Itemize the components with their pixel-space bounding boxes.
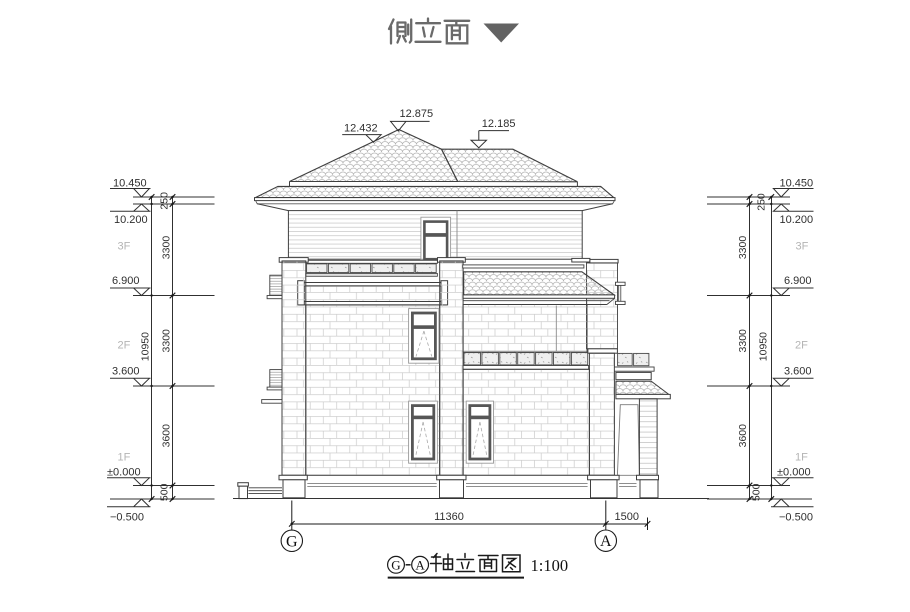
svg-text:−0.500: −0.500 bbox=[110, 512, 144, 524]
svg-text:500: 500 bbox=[751, 483, 763, 501]
svg-text:6.900: 6.900 bbox=[784, 275, 812, 287]
svg-text:3600: 3600 bbox=[161, 424, 173, 448]
svg-text:10950: 10950 bbox=[139, 332, 151, 361]
svg-text:A: A bbox=[415, 557, 425, 572]
svg-text:500: 500 bbox=[159, 483, 171, 501]
svg-text:2F: 2F bbox=[795, 340, 808, 352]
svg-text:10950: 10950 bbox=[757, 332, 769, 361]
svg-text:1500: 1500 bbox=[615, 511, 639, 523]
svg-text:±0.000: ±0.000 bbox=[107, 466, 141, 478]
svg-text:10.450: 10.450 bbox=[113, 177, 147, 189]
svg-text:3600: 3600 bbox=[737, 424, 749, 448]
svg-text:10.450: 10.450 bbox=[780, 177, 814, 189]
svg-text:250: 250 bbox=[756, 193, 768, 211]
svg-text:G: G bbox=[286, 533, 298, 550]
svg-text:1F: 1F bbox=[118, 451, 131, 463]
svg-text:2F: 2F bbox=[118, 340, 131, 352]
svg-text:A: A bbox=[600, 533, 612, 550]
svg-text:1:100: 1:100 bbox=[531, 556, 569, 575]
svg-text:6.900: 6.900 bbox=[112, 275, 140, 287]
svg-text:12.875: 12.875 bbox=[400, 108, 434, 120]
svg-text:G: G bbox=[391, 557, 400, 572]
svg-text:3300: 3300 bbox=[161, 236, 173, 260]
svg-text:11360: 11360 bbox=[434, 511, 464, 523]
svg-text:3F: 3F bbox=[118, 241, 131, 253]
svg-text:3300: 3300 bbox=[737, 236, 749, 260]
svg-text:3.600: 3.600 bbox=[112, 365, 140, 377]
svg-text:−0.500: −0.500 bbox=[779, 512, 813, 524]
svg-text:1F: 1F bbox=[795, 451, 808, 463]
svg-text:3300: 3300 bbox=[737, 329, 749, 353]
svg-text:3F: 3F bbox=[796, 241, 809, 253]
svg-text:250: 250 bbox=[159, 192, 171, 210]
svg-text:12.432: 12.432 bbox=[344, 122, 378, 134]
svg-text:3.600: 3.600 bbox=[784, 365, 812, 377]
svg-text:±0.000: ±0.000 bbox=[777, 466, 811, 478]
svg-text:10.200: 10.200 bbox=[780, 214, 814, 226]
svg-text:10.200: 10.200 bbox=[114, 214, 148, 226]
svg-text:3300: 3300 bbox=[161, 329, 173, 353]
svg-text:12.185: 12.185 bbox=[482, 118, 516, 130]
